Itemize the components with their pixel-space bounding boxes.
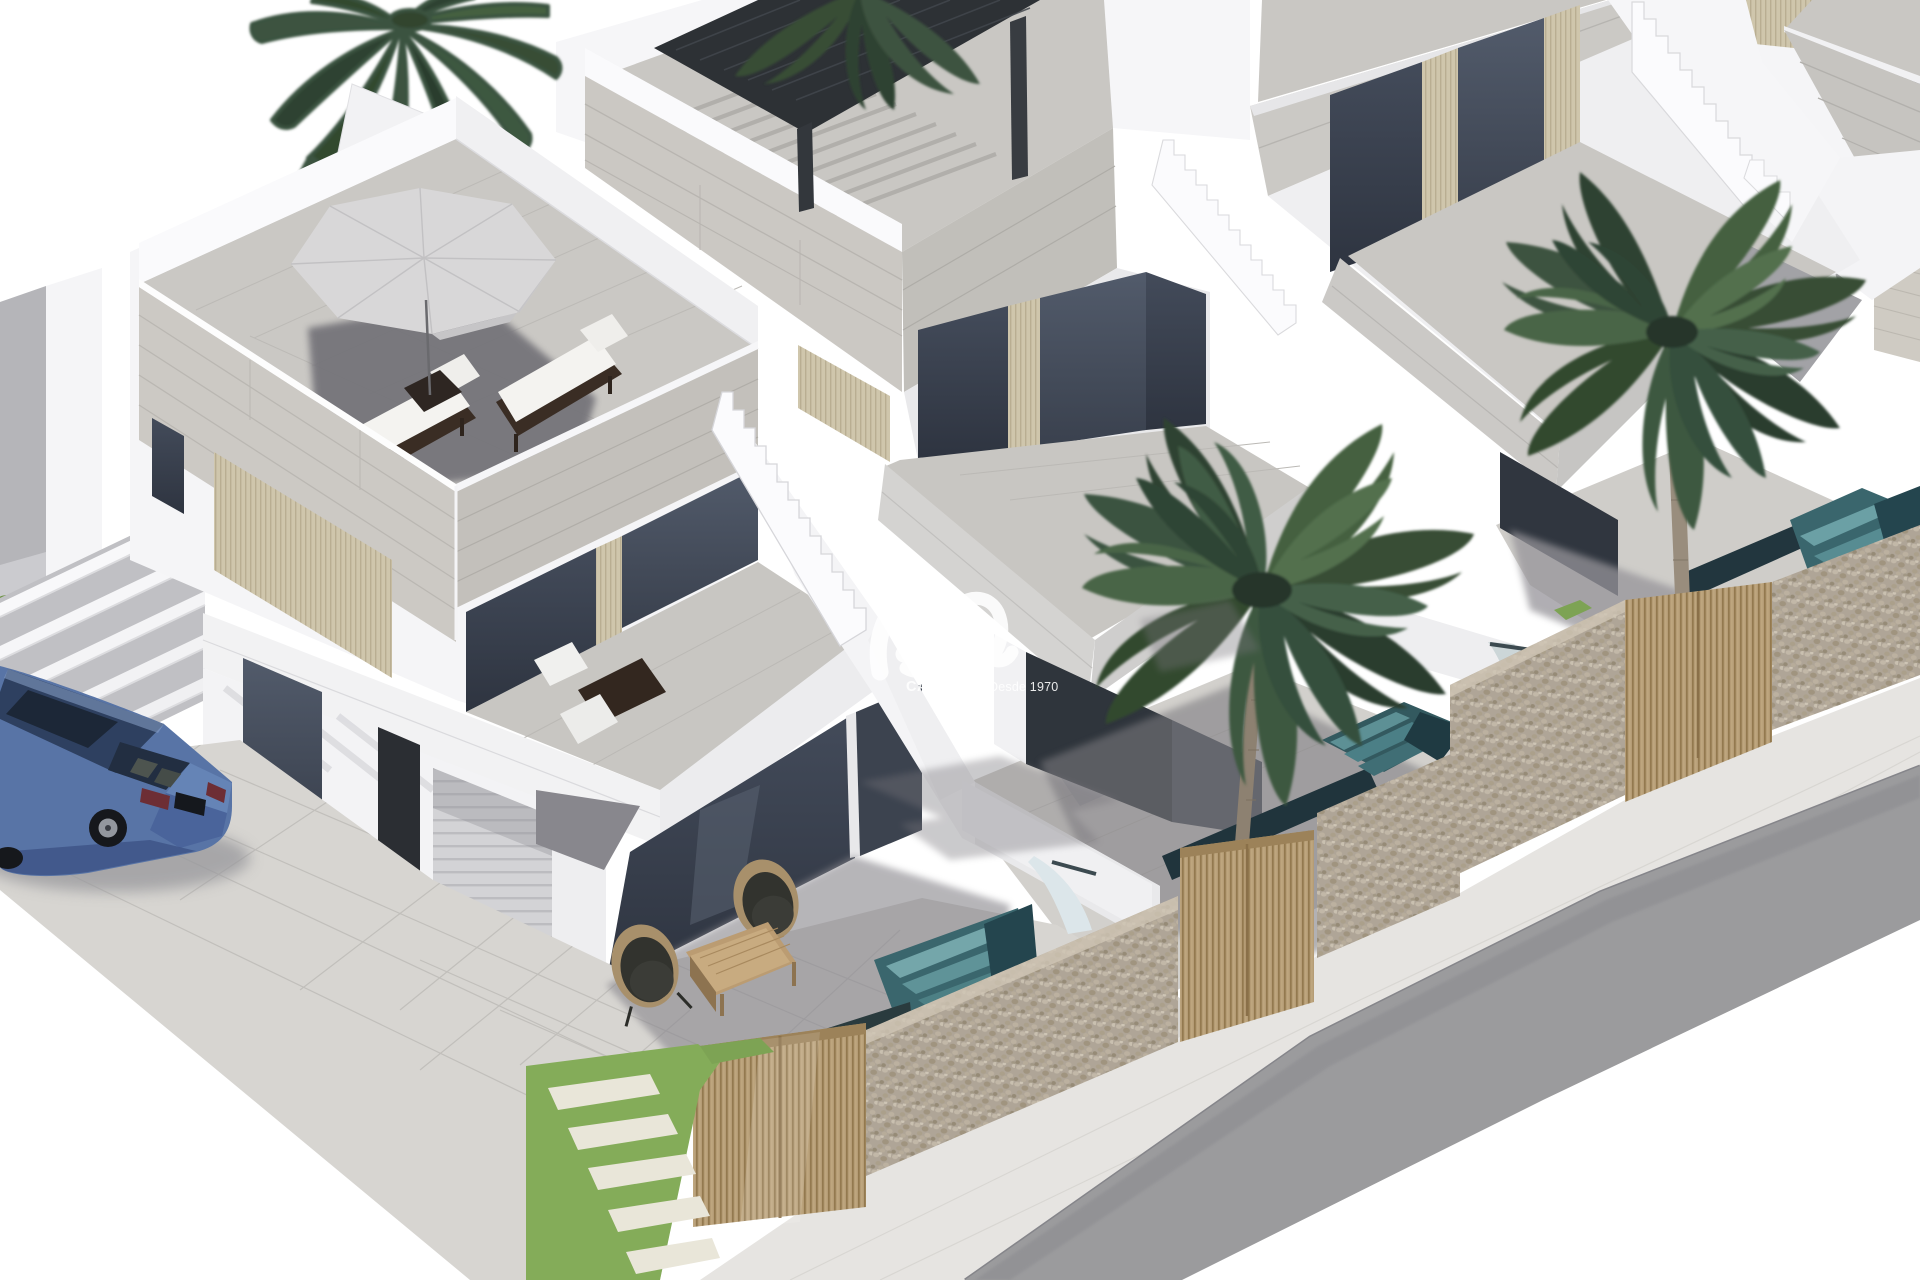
svg-text:CABO ROIG: CABO ROIG xyxy=(906,679,994,695)
svg-text:Desde 1970: Desde 1970 xyxy=(989,680,1058,694)
